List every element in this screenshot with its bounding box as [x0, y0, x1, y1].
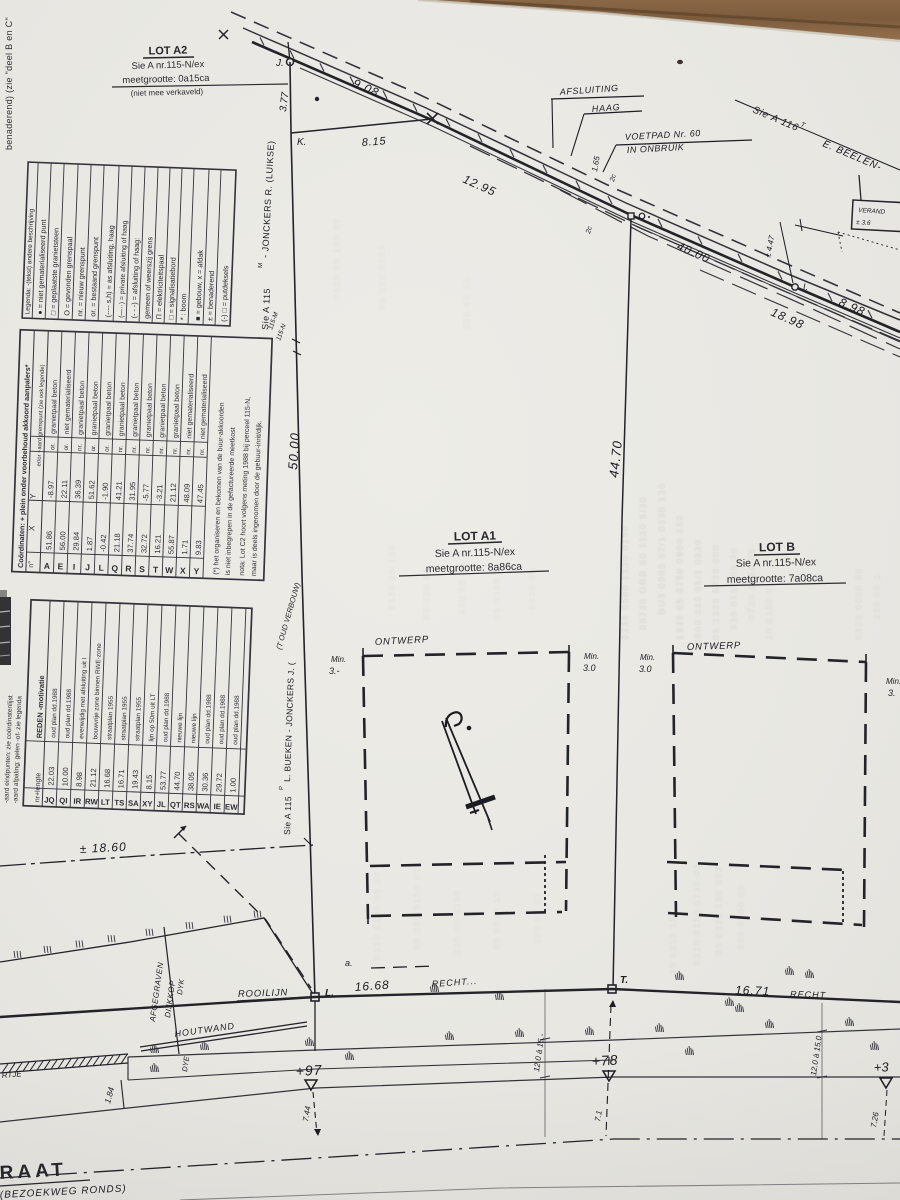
svg-text:I: I [73, 562, 76, 572]
svg-text:a.: a. [345, 958, 353, 968]
svg-text:330 05 15: 330 05 15 [462, 277, 473, 330]
svg-text:05 0330 1: 05 0330 1 [492, 567, 503, 620]
svg-text:0500 330 05/1 0330: 0500 330 05/1 0330 [693, 539, 704, 645]
svg-text:nr.: nr. [199, 448, 206, 455]
svg-text:IR: IR [73, 797, 82, 806]
svg-text:47.45: 47.45 [196, 484, 206, 503]
svg-text:3.0: 3.0 [639, 664, 652, 674]
svg-text:I.: I. [803, 282, 808, 292]
svg-text:37.74: 37.74 [126, 534, 136, 553]
svg-text:32.72: 32.72 [139, 534, 149, 553]
svg-text:330 05 0150: 330 05 0150 [452, 889, 463, 955]
svg-text:nr.: nr. [76, 444, 83, 451]
svg-text:38.05: 38.05 [186, 772, 196, 791]
svg-text:R: R [125, 564, 131, 574]
svg-text:3.: 3. [888, 688, 896, 698]
svg-text:16.71: 16.71 [116, 769, 126, 788]
svg-text:3.0: 3.0 [583, 663, 596, 673]
svg-text:330 05 1: 330 05 1 [872, 573, 883, 620]
svg-text:05730 GBB 00 1130 5/30: 05730 GBB 00 1130 5/30 [638, 496, 649, 630]
svg-text:9.83: 9.83 [194, 540, 204, 555]
svg-text:0330 0000 50: 0330 0000 50 [854, 567, 865, 640]
svg-text:Min.: Min. [640, 653, 655, 662]
svg-text:30.36: 30.36 [200, 772, 210, 791]
svg-text:nr.: nr. [117, 445, 124, 452]
svg-text:-5.77: -5.77 [141, 484, 151, 502]
svg-text:05 330 0150: 05 330 0150 [377, 244, 388, 310]
svg-text:or.: or. [90, 444, 97, 451]
svg-text:44.70: 44.70 [172, 771, 182, 790]
svg-text:L: L [98, 563, 104, 573]
svg-text:J.: J. [275, 58, 284, 69]
svg-text:n°: n° [27, 561, 35, 568]
svg-text:JQ: JQ [44, 795, 55, 804]
svg-text:22.11: 22.11 [60, 480, 70, 499]
svg-text:nieuwe lijn: nieuwe lijn [176, 712, 184, 743]
svg-text:22.03: 22.03 [46, 767, 56, 786]
svg-text:51.62: 51.62 [87, 480, 97, 499]
svg-text:XY: XY [142, 799, 154, 808]
svg-text:1.00: 1.00 [228, 778, 238, 793]
svg-text:8.98: 8.98 [74, 772, 84, 787]
svg-text:Y: Y [28, 493, 37, 499]
svg-text:nr+lengte: nr+lengte [34, 773, 42, 803]
svg-text:8.15: 8.15 [361, 135, 386, 149]
svg-text:16.68: 16.68 [102, 769, 112, 788]
svg-text:benaderend) (zie "deel B en C": benaderend) (zie "deel B en C" [4, 17, 14, 150]
svg-text:nr.: nr. [185, 447, 192, 454]
svg-text:LOT A2: LOT A2 [148, 44, 187, 57]
svg-text:RECHT: RECHT [790, 989, 827, 1000]
svg-text:LOT A1: LOT A1 [454, 528, 497, 543]
svg-text:nr.: nr. [131, 446, 138, 453]
svg-text:or.: or. [63, 443, 70, 450]
svg-text:16.71: 16.71 [735, 983, 770, 998]
svg-text:or.: or. [104, 445, 111, 452]
svg-text:RS: RS [184, 801, 195, 810]
svg-text:T.: T. [620, 975, 628, 986]
svg-text:21.12: 21.12 [168, 483, 178, 502]
svg-text:1330 05 0730 0000 330: 1330 05 0730 0000 330 [675, 514, 686, 640]
svg-text:Min.: Min. [584, 652, 599, 661]
svg-text:Min.: Min. [331, 655, 346, 664]
svg-text:-1.90: -1.90 [100, 482, 110, 500]
svg-text:50.00: 50.00 [285, 432, 303, 471]
svg-text:21.12: 21.12 [88, 768, 98, 787]
svg-text:53.77: 53.77 [158, 771, 168, 790]
svg-text:Sie A 115: Sie A 115 [282, 796, 293, 835]
svg-text:0330 05 150 07: 0330 05 150 07 [332, 217, 343, 300]
svg-text:X: X [180, 565, 186, 575]
svg-text:36.39: 36.39 [73, 480, 83, 499]
svg-text:LOT B: LOT B [759, 540, 796, 555]
svg-text:SA: SA [128, 799, 140, 808]
svg-text:LT: LT [101, 798, 111, 807]
svg-text:JL: JL [157, 800, 167, 809]
svg-text:1.87: 1.87 [85, 536, 95, 551]
svg-text:K.: K. [297, 137, 306, 148]
svg-text:WA: WA [197, 801, 210, 810]
svg-text:31.95: 31.95 [128, 482, 138, 501]
svg-text:meetgrootte: 0a15ca: meetgrootte: 0a15ca [122, 73, 210, 86]
svg-text:IE: IE [213, 802, 221, 811]
svg-text:A: A [44, 561, 50, 571]
svg-text:29.84: 29.84 [71, 532, 81, 551]
svg-text:330 05 01: 330 05 01 [532, 892, 543, 945]
svg-text:3.-: 3.- [329, 666, 340, 676]
svg-text:nr.: nr. [172, 447, 179, 454]
svg-text:RAAT: RAAT [0, 1159, 68, 1183]
svg-text:± 3.6: ± 3.6 [856, 219, 871, 227]
svg-text:16.68: 16.68 [354, 978, 390, 994]
svg-text:+78: +78 [591, 1052, 619, 1069]
svg-text:(niet mee verkaveld): (niet mee verkaveld) [131, 87, 204, 98]
svg-text:Sie A nr.115-N/ex: Sie A nr.115-N/ex [131, 59, 204, 72]
svg-text:RTJE: RTJE [1, 1069, 22, 1080]
svg-text:1.71: 1.71 [180, 540, 190, 555]
svg-text:0330 05: 0330 05 [527, 567, 538, 610]
svg-text:EW: EW [225, 802, 239, 812]
svg-text:30 0150 0: 30 0150 0 [764, 587, 775, 640]
svg-text:QI: QI [59, 796, 68, 805]
svg-text:* : boom: * : boom [178, 293, 188, 320]
svg-text:W: W [165, 565, 174, 575]
svg-text:+97: +97 [295, 1062, 323, 1079]
svg-text:29.72: 29.72 [214, 773, 224, 792]
svg-text:or.: or. [49, 443, 56, 450]
svg-text:05 330 0150 07: 05 330 0150 07 [412, 867, 423, 950]
svg-text:J: J [85, 562, 90, 572]
svg-text:21.18: 21.18 [112, 533, 122, 552]
svg-text:nieuwe lijn: nieuwe lijn [190, 713, 198, 744]
svg-text:+3: +3 [873, 1059, 889, 1075]
svg-text:05 0330 150 073: 05 0330 150 073 [714, 866, 725, 955]
svg-text:05 0330 15: 05 0330 15 [492, 890, 503, 950]
svg-text:05 0330 15: 05 0330 15 [668, 915, 679, 975]
svg-text:55.87: 55.87 [167, 535, 177, 554]
svg-text:-0.42: -0.42 [99, 534, 109, 552]
svg-text:8.15: 8.15 [144, 775, 154, 790]
svg-text:51.86: 51.86 [44, 531, 54, 550]
svg-text:05 1330 0730 000: 05 1330 0730 000 [711, 544, 722, 640]
svg-text:Q: Q [111, 563, 118, 573]
svg-text:QT: QT [170, 800, 181, 809]
svg-text:56.00: 56.00 [58, 531, 68, 550]
svg-text:P: P [279, 786, 285, 790]
svg-text:M: M [258, 263, 264, 268]
svg-text:ONTWERP: ONTWERP [687, 640, 742, 653]
svg-text:19.43: 19.43 [130, 770, 140, 789]
svg-text:-3.21: -3.21 [155, 484, 165, 502]
svg-text:X: X [27, 525, 36, 531]
svg-text:Min.: Min. [886, 677, 900, 686]
svg-text:-8.97: -8.97 [46, 480, 56, 498]
svg-text:BU3 0000 57/1 0330 130: BU3 0000 57/1 0330 130 [657, 482, 668, 615]
svg-text:TS: TS [114, 798, 124, 807]
svg-text:± 18.60: ± 18.60 [79, 840, 127, 856]
svg-text:nr.: nr. [158, 446, 165, 453]
svg-text:RW: RW [85, 797, 99, 807]
svg-text:E: E [57, 561, 63, 571]
svg-text:Sie A nr.115-N/ex: Sie A nr.115-N/ex [435, 546, 516, 560]
svg-text:Sie A nr.115-N/ex: Sie A nr.115-N/ex [736, 556, 817, 569]
svg-text:0330 05 150: 0330 05 150 [387, 544, 398, 610]
svg-text:nr.: nr. [144, 446, 151, 453]
svg-text:7.1: 7.1 [593, 1110, 604, 1123]
svg-text:16.21: 16.21 [153, 535, 163, 554]
svg-text:Y: Y [193, 566, 199, 576]
svg-text:48.09: 48.09 [182, 483, 192, 502]
svg-text:S: S [139, 564, 145, 574]
svg-text:10.00: 10.00 [60, 767, 70, 786]
svg-text:41.21: 41.21 [114, 481, 124, 500]
